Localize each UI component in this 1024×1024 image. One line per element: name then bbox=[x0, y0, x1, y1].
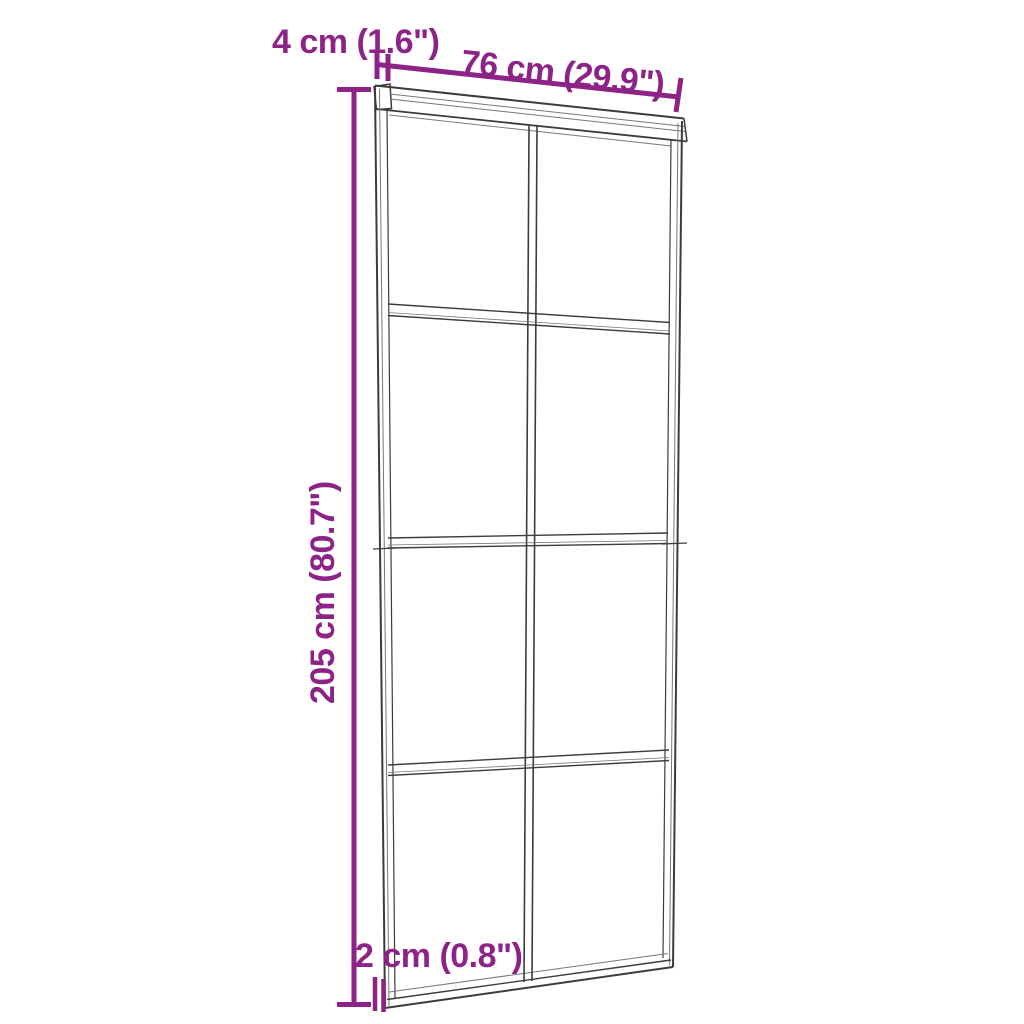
track-width-label: 4 cm (1.6") bbox=[272, 23, 439, 61]
mullion1-top bbox=[388, 304, 670, 323]
door-drawing bbox=[373, 84, 687, 1008]
vertical-mullion-left-edge bbox=[524, 126, 529, 982]
frame-left-outer bbox=[375, 87, 385, 1008]
width-dim-label: 76 cm (29.9") bbox=[459, 43, 666, 103]
mullion2-top bbox=[388, 533, 668, 538]
width-dim-right-tick bbox=[676, 78, 681, 112]
height-dim-label: 205 cm (80.7") bbox=[304, 481, 342, 704]
height-dimension: 205 cm (80.7") bbox=[304, 90, 371, 1005]
track-right-cap bbox=[684, 119, 687, 142]
frame-left-inner bbox=[387, 109, 395, 999]
thickness-dim-label: 2 cm (0.8") bbox=[355, 937, 522, 975]
mullion3-mid bbox=[388, 758, 669, 773]
glass-top-edge bbox=[389, 115, 671, 146]
diagram-canvas: 205 cm (80.7") 4 cm (1.6") 76 cm (29.9")… bbox=[0, 0, 1024, 1024]
mullion1-mid bbox=[388, 313, 670, 332]
track-width-dimension: 4 cm (1.6") bbox=[272, 23, 439, 81]
dimension-annotations: 205 cm (80.7") 4 cm (1.6") 76 cm (29.9")… bbox=[272, 23, 681, 1012]
vertical-mullion-right-edge bbox=[532, 127, 537, 982]
frame-right-inner bbox=[663, 139, 671, 958]
mullion1-bottom bbox=[388, 316, 670, 335]
mullion2-left-joint-tick bbox=[373, 548, 396, 549]
glass-grid bbox=[373, 126, 687, 982]
